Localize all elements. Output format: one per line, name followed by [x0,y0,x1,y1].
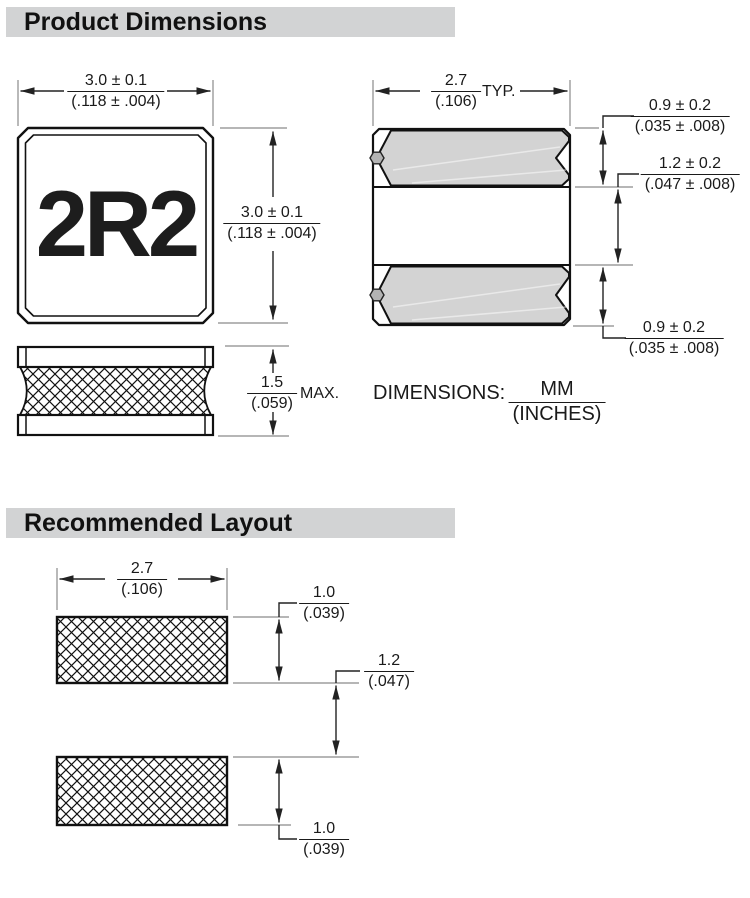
dim-pad-gap-lines [575,174,639,265]
layout-dim-pad-top-height: 1.0 (.039) [299,584,349,622]
dim-pad-width-mm: 2.7 [442,72,470,91]
dim-pad-width: 2.7 (.106) [431,72,481,110]
units-note-inches: (INCHES) [509,402,606,425]
dim-thickness: 1.5 (.059) [247,374,297,412]
dim-pad-gap: 1.2 ± 0.2 (.047 ± .008) [641,155,740,193]
units-note-mm: MM [537,379,576,402]
dim-pad-top-height: 0.9 ± 0.2 (.035 ± .008) [631,97,730,135]
dim-body-width: 3.0 ± 0.1 (.118 ± .004) [67,72,164,110]
dim-pad-bottom-lines [573,268,626,339]
units-note-label: DIMENSIONS: [373,385,505,402]
winding-hatched-body [20,367,211,415]
layout-dim-pad-bottom-height: 1.0 (.039) [299,820,349,858]
layout-pad-width-mm: 2.7 [128,560,156,579]
dim-body-width-in: (.118 ± .004) [67,91,164,110]
dim-body-height-mm: 3.0 ± 0.1 [238,204,306,223]
terminal-bar-bottom [18,415,213,435]
layout-dim-lines [233,603,360,839]
part-marking: 2R2 [36,170,196,278]
layout-pad-gap-mm: 1.2 [375,652,403,671]
datasheet-drawing-page: Product Dimensions Recommended Layout 2R… [0,0,750,898]
units-note-fraction: MM (INCHES) [509,379,606,425]
bottom-view-drawing [370,129,570,325]
layout-pad-top [57,617,227,683]
dim-thickness-qualifier: MAX. [300,385,339,402]
dim-thickness-in: (.059) [247,393,297,412]
dim-pad-top-lines [575,116,634,187]
polarity-dot-top [370,152,384,164]
dim-pad-bottom-mm: 0.9 ± 0.2 [640,319,708,338]
layout-pad-width-in: (.106) [117,579,167,598]
layout-pads [57,617,227,825]
layout-pad-bottom-in: (.039) [299,839,349,858]
dim-pad-gap-mm: 1.2 ± 0.2 [656,155,724,174]
dim-body-height-in: (.118 ± .004) [223,223,320,242]
section-header-product-dimensions: Product Dimensions [6,7,455,37]
layout-pad-gap-in: (.047) [364,671,414,690]
dim-body-width-mm: 3.0 ± 0.1 [82,72,150,91]
dim-pad-width-qualifier: TYP. [482,83,516,100]
terminal-bar-top [18,347,213,367]
dim-pad-bottom-height: 0.9 ± 0.2 (.035 ± .008) [625,319,724,357]
layout-pad-top-mm: 1.0 [310,584,338,603]
dim-pad-top-mm: 0.9 ± 0.2 [646,97,714,116]
section-header-recommended-layout: Recommended Layout [6,508,455,538]
dim-pad-gap-in: (.047 ± .008) [641,174,740,193]
layout-pad-bottom-mm: 1.0 [310,820,338,839]
dim-pad-top-in: (.035 ± .008) [631,116,730,135]
layout-dim-pad-width: 2.7 (.106) [117,560,167,598]
dim-thickness-mm: 1.5 [258,374,286,393]
polarity-dot-bottom [370,289,384,301]
layout-pad-bottom [57,757,227,825]
layout-pad-top-in: (.039) [299,603,349,622]
dim-pad-bottom-in: (.035 ± .008) [625,338,724,357]
side-view-drawing [18,347,213,435]
layout-dim-pad-gap: 1.2 (.047) [364,652,414,690]
dim-pad-width-in: (.106) [431,91,481,110]
dim-body-height: 3.0 ± 0.1 (.118 ± .004) [223,204,320,242]
